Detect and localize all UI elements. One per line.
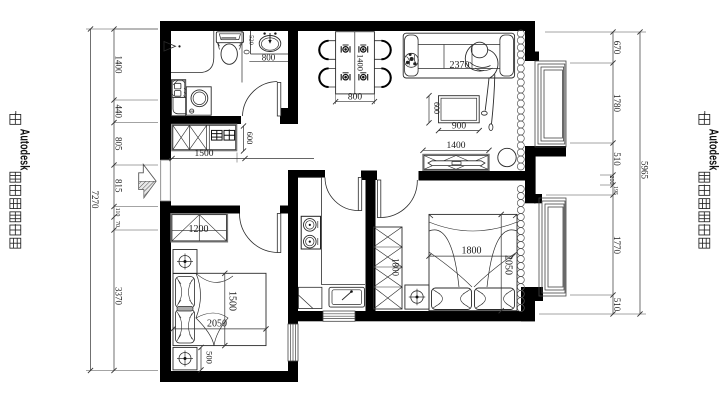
- svg-text:510: 510: [612, 298, 622, 312]
- svg-text:3370: 3370: [114, 287, 124, 306]
- svg-text:Autodesk: Autodesk: [18, 129, 33, 171]
- svg-text:1400: 1400: [356, 54, 366, 71]
- svg-text:2370: 2370: [450, 60, 470, 71]
- svg-text:805: 805: [114, 137, 124, 151]
- svg-text:500: 500: [205, 351, 215, 364]
- svg-text:670: 670: [612, 41, 622, 55]
- svg-text:1770: 1770: [612, 236, 622, 255]
- svg-text:800: 800: [262, 53, 276, 63]
- svg-text:110: 110: [114, 208, 120, 217]
- svg-text:1780: 1780: [612, 94, 622, 113]
- svg-text:900: 900: [452, 121, 467, 131]
- svg-text:2050: 2050: [207, 319, 227, 330]
- svg-text:815: 815: [114, 179, 124, 193]
- svg-text:1500: 1500: [195, 149, 214, 159]
- svg-text:800: 800: [348, 93, 363, 103]
- svg-text:5965: 5965: [640, 161, 650, 180]
- svg-text:600: 600: [245, 132, 255, 145]
- svg-text:520: 520: [248, 35, 255, 45]
- svg-text:7270: 7270: [90, 191, 100, 210]
- svg-text:1200: 1200: [189, 224, 209, 235]
- svg-text:1500: 1500: [226, 291, 237, 311]
- svg-text:Autodesk: Autodesk: [707, 129, 720, 171]
- svg-text:200: 200: [608, 176, 614, 185]
- svg-text:70: 70: [114, 221, 120, 227]
- svg-text:1400: 1400: [447, 141, 466, 151]
- svg-text:2050: 2050: [503, 255, 514, 275]
- svg-text:510: 510: [612, 152, 622, 166]
- svg-text:1800: 1800: [462, 245, 482, 256]
- svg-text:1400: 1400: [114, 56, 124, 75]
- svg-text:195: 195: [612, 186, 618, 195]
- svg-text:1800: 1800: [391, 258, 401, 277]
- svg-text:600: 600: [432, 102, 441, 114]
- svg-text:440: 440: [114, 105, 124, 119]
